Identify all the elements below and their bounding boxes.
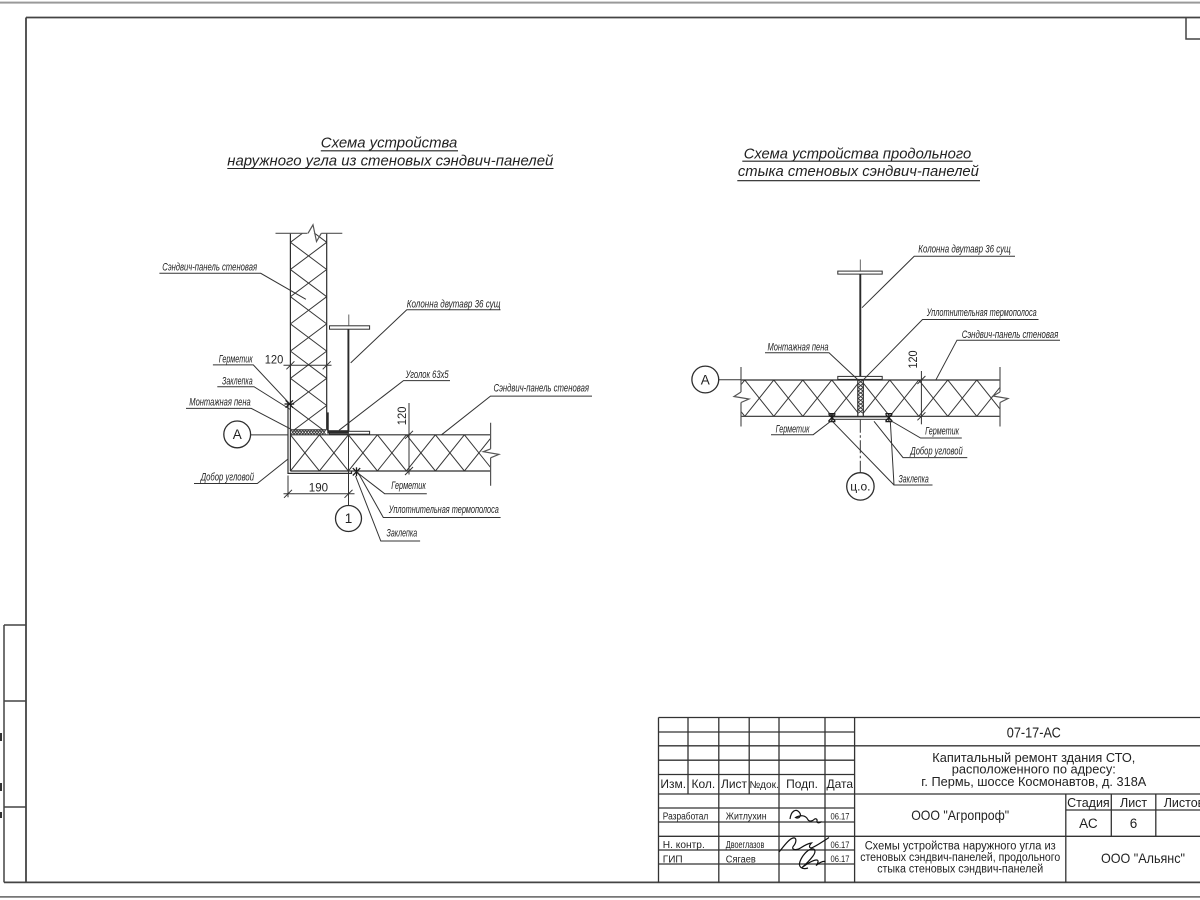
svg-text:120: 120 [397, 407, 409, 426]
svg-text:Кол.: Кол. [692, 777, 716, 791]
svg-text:120: 120 [908, 351, 920, 369]
svg-text:А: А [233, 427, 242, 442]
svg-text:Двоеглазов: Двоеглазов [726, 840, 765, 851]
svg-text:стыка стеновых сэндвич-панелей: стыка стеновых сэндвич-панелей [738, 163, 980, 180]
svg-text:А: А [701, 372, 710, 387]
svg-text:Подп.: Подп. [786, 777, 818, 791]
svg-text:г. Пермь, шоссе Космонавтов, д: г. Пермь, шоссе Космонавтов, д. 318А [921, 775, 1147, 789]
svg-text:06.17: 06.17 [831, 854, 850, 865]
svg-text:№док.: №док. [749, 780, 778, 791]
svg-text:Заклепка: Заклепка [899, 473, 929, 485]
svg-text:Изм.: Изм. [660, 777, 686, 791]
svg-text:Герметик: Герметик [391, 480, 426, 492]
svg-text:Лист: Лист [1120, 796, 1147, 810]
svg-text:Стадия: Стадия [1067, 796, 1110, 810]
svg-text:Сэндвич-панель стеновая: Сэндвич-панель стеновая [162, 262, 257, 274]
svg-text:Листов: Листов [1164, 796, 1200, 810]
svg-text:Сэндвич-панель стеновая: Сэндвич-панель стеновая [962, 329, 1059, 341]
svg-text:ГИП: ГИП [663, 855, 683, 866]
svg-text:Схема устройства продольного: Схема устройства продольного [744, 145, 972, 162]
svg-text:АС: АС [1079, 816, 1098, 831]
svg-text:стыка стеновых сэндвич-панелей: стыка стеновых сэндвич-панелей [877, 864, 1043, 876]
svg-text:190: 190 [309, 482, 328, 494]
svg-text:6: 6 [1130, 816, 1138, 831]
svg-text:Герметик: Герметик [925, 426, 960, 438]
svg-text:Разработал: Разработал [663, 811, 709, 823]
svg-text:Герметик: Герметик [776, 424, 810, 436]
svg-text:1: 1 [345, 511, 353, 526]
svg-text:Схемы устройства наружного угл: Схемы устройства наружного угла из [865, 841, 1056, 853]
svg-text:Герметик: Герметик [219, 353, 254, 365]
svg-text:07-17-АС: 07-17-АС [1007, 724, 1061, 741]
svg-text:Сягаев: Сягаев [726, 855, 756, 866]
svg-text:Колонна двутавр 36 сущ: Колонна двутавр 36 сущ [407, 299, 501, 311]
svg-text:ц.о.: ц.о. [850, 480, 870, 494]
svg-text:Уплотнительная термополоса: Уплотнительная термополоса [926, 307, 1037, 319]
svg-text:ООО "Агропроф": ООО "Агропроф" [911, 807, 1009, 823]
svg-text:120: 120 [265, 354, 284, 366]
svg-text:Уплотнительная термополоса: Уплотнительная термополоса [388, 504, 499, 516]
svg-text:Добор угловой: Добор угловой [199, 472, 254, 484]
svg-text:Сэндвич-панель стеновая: Сэндвич-панель стеновая [494, 383, 590, 395]
svg-text:Монтажная пена: Монтажная пена [189, 397, 250, 409]
svg-text:Н. контр.: Н. контр. [663, 840, 705, 851]
svg-text:06.17: 06.17 [831, 811, 850, 822]
svg-text:Заклепка: Заклепка [387, 527, 418, 539]
svg-text:Дата: Дата [827, 777, 854, 791]
svg-text:06.17: 06.17 [831, 840, 850, 851]
svg-text:Схема устройства: Схема устройства [321, 135, 458, 152]
svg-text:стеновых сэндвич-панелей, прод: стеновых сэндвич-панелей, продольного [860, 852, 1060, 864]
svg-text:Монтажная пена: Монтажная пена [768, 341, 829, 353]
svg-text:Уголок 63х5: Уголок 63х5 [405, 369, 449, 381]
svg-text:ООО "Альянс": ООО "Альянс" [1101, 850, 1185, 866]
svg-text:Добор угловой: Добор угловой [909, 446, 963, 458]
svg-text:Житлухин: Житлухин [726, 812, 767, 823]
svg-text:наружного угла из стеновых сэн: наружного угла из стеновых сэндвич-панел… [227, 153, 554, 170]
svg-text:Лист: Лист [721, 777, 748, 791]
svg-text:Колонна двутавр 36 сущ: Колонна двутавр 36 сущ [918, 243, 1011, 255]
svg-text:Заклепка: Заклепка [222, 375, 253, 387]
